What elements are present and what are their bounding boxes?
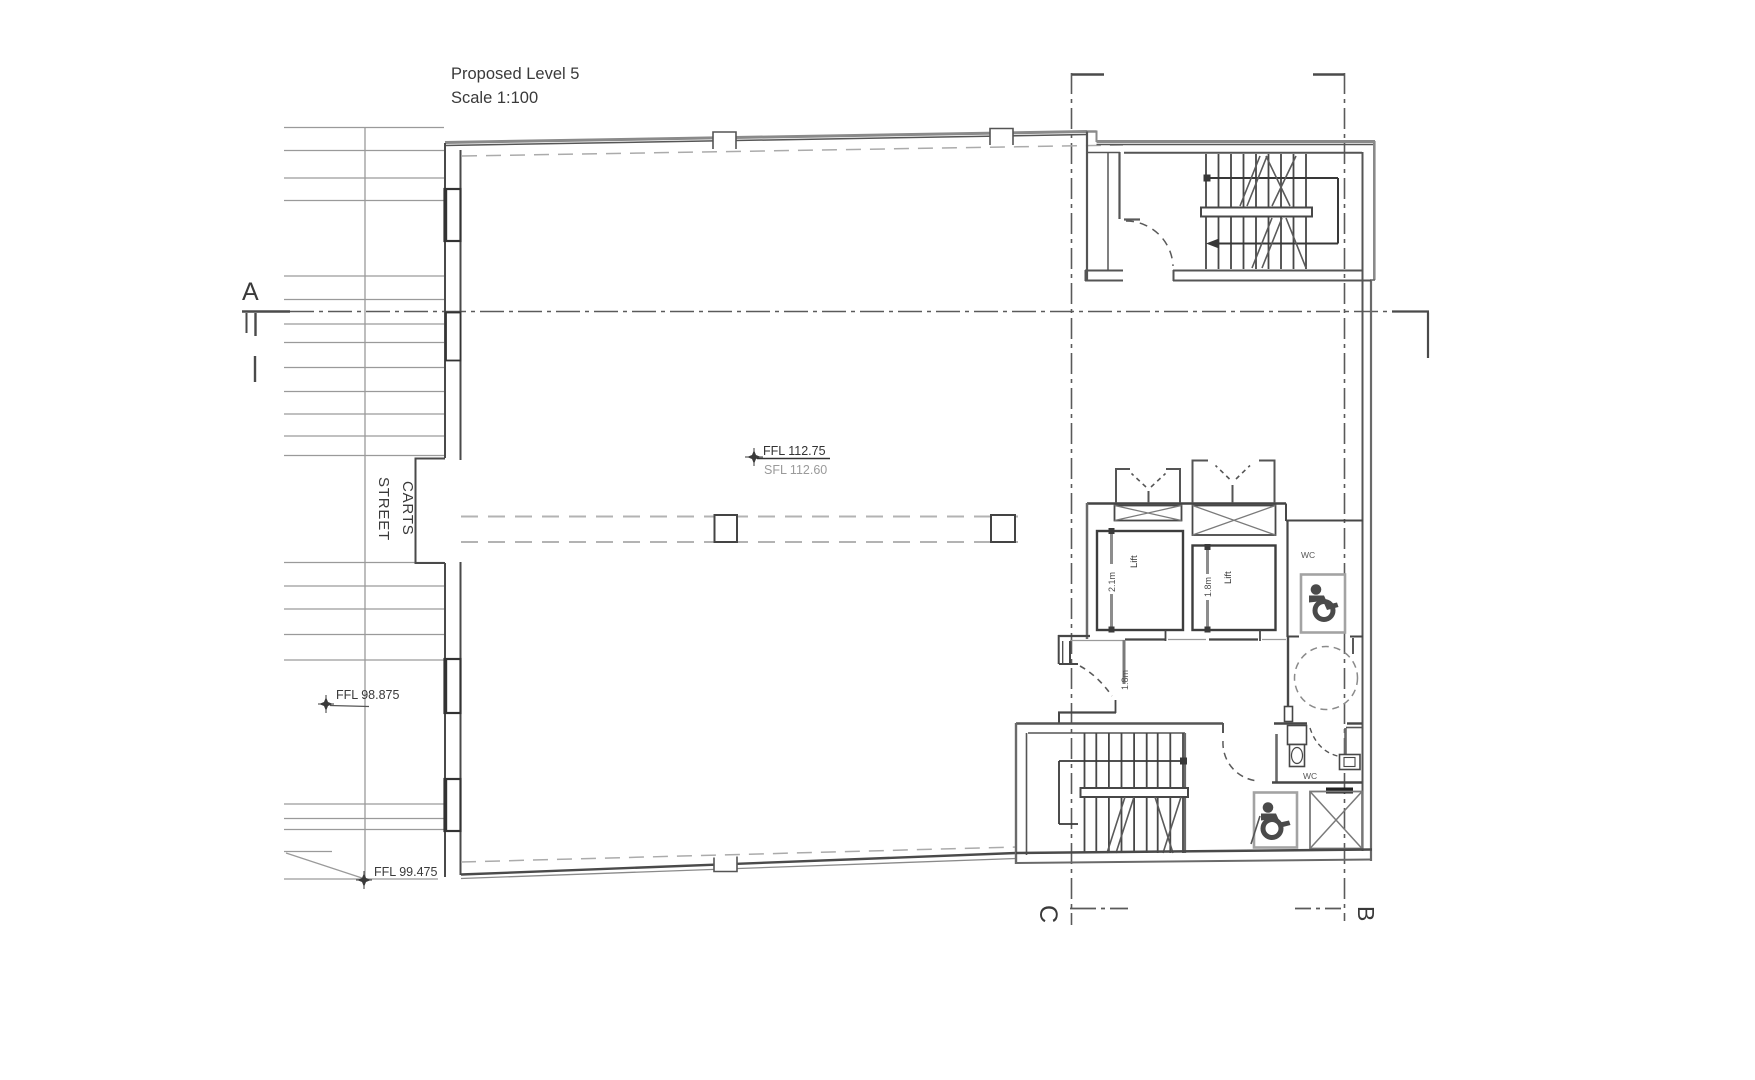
svg-text:A: A xyxy=(242,278,259,306)
svg-text:FFL 99.475: FFL 99.475 xyxy=(374,865,438,879)
svg-text:WC: WC xyxy=(1303,771,1317,781)
svg-text:Proposed Level 5: Proposed Level 5 xyxy=(451,65,579,83)
svg-text:C: C xyxy=(1034,905,1062,923)
svg-text:Scale 1:100: Scale 1:100 xyxy=(451,89,538,107)
svg-text:STREET: STREET xyxy=(375,477,392,541)
svg-text:2.1m: 2.1m xyxy=(1107,572,1117,592)
svg-text:WC: WC xyxy=(1301,550,1315,560)
svg-text:Lift: Lift xyxy=(1223,571,1234,584)
svg-text:B: B xyxy=(1353,906,1379,921)
svg-text:Lift: Lift xyxy=(1129,555,1140,568)
svg-text:FFL 112.75: FFL 112.75 xyxy=(763,444,826,458)
svg-text:FFL 98.875: FFL 98.875 xyxy=(336,688,400,702)
svg-text:SFL 112.60: SFL 112.60 xyxy=(764,463,827,477)
svg-text:CARTS: CARTS xyxy=(399,481,416,536)
svg-text:1.8m: 1.8m xyxy=(1120,670,1130,690)
svg-text:1.8m: 1.8m xyxy=(1203,577,1213,597)
